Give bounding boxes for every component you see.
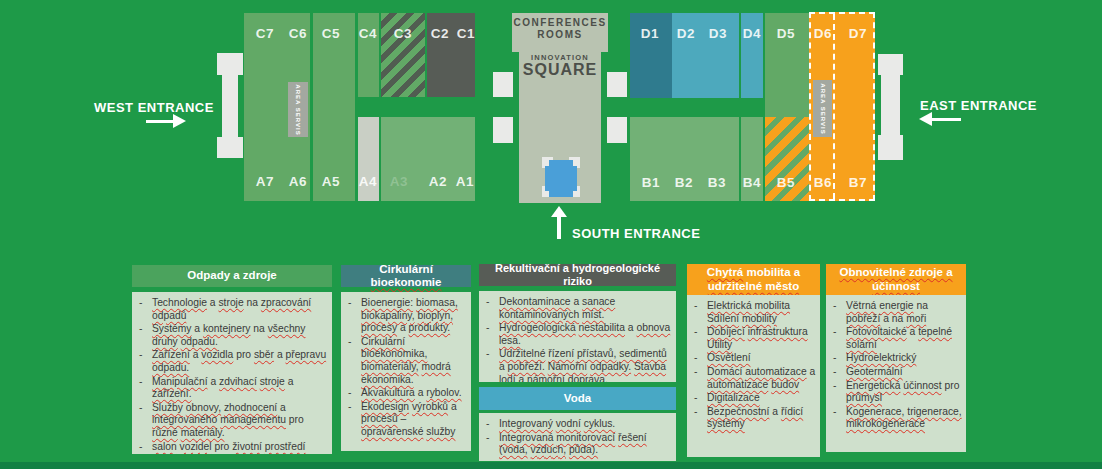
- hall-label-b7: B7: [849, 175, 867, 190]
- bullet-dash: -: [831, 406, 846, 431]
- area-service-strip-east: AREA SERVIS: [813, 80, 832, 137]
- legend-body: -Integrovaný vodní cyklus.-Integrovaná m…: [479, 413, 676, 461]
- area-service-east-label: AREA SERVIS: [820, 83, 826, 134]
- south-arrow-icon: [551, 206, 567, 217]
- legend-body: -Technologie a stroje na zpracování odpa…: [132, 292, 332, 454]
- hall-label-a5: A5: [322, 174, 340, 189]
- hall-label-a1: A1: [456, 174, 474, 189]
- east-arrow-shaft: [932, 118, 961, 121]
- bullet-dash: -: [692, 366, 707, 391]
- legend-item: -Cirkulární bioekonomika, biomateriály, …: [346, 336, 468, 386]
- legend-item: -Hydrogeologická nestabilita a obnova le…: [484, 322, 673, 347]
- area-service-strip-west: AREA SERVIS: [288, 82, 308, 137]
- legend-item: -Bezpečnostní a řídicí systémy: [692, 406, 817, 431]
- legend-header: Cirkulární bioekonomie: [341, 265, 471, 287]
- east-arrow-icon: [919, 112, 932, 126]
- building-door-east-2: [607, 117, 627, 143]
- hall-label-b3: B3: [708, 175, 726, 190]
- legend-item: -Dekontaminace a sanace kontaminovaných …: [484, 296, 673, 321]
- west-door-mid: [222, 75, 238, 137]
- legend-item: -Bioenergie: biomasa, biokapaliny, biopl…: [346, 297, 468, 335]
- innovation-square-label: INNOVATION SQUARE: [519, 53, 601, 77]
- legend-header: Odpady a zdroje: [132, 265, 332, 287]
- table-blue-horizontal: [545, 166, 577, 191]
- bullet-dash: -: [831, 366, 846, 379]
- legend-item: -Fotovoltaické a tepelné solární: [831, 326, 963, 351]
- hall-label-d5: D5: [777, 26, 795, 41]
- bullet-dash: -: [137, 376, 152, 401]
- bullet-dash: -: [831, 352, 846, 365]
- legend-header: Chytrá mobilita a udržitelné město: [687, 264, 820, 295]
- legend-item: -Větrná energie na pobřeží a na moři: [831, 300, 963, 325]
- legend-item: -Akvakultura a rybolov.: [346, 387, 468, 400]
- hall-label-d6: D6: [814, 26, 832, 41]
- hall-label-b4: B4: [743, 175, 761, 190]
- hall-label-a4: A4: [359, 174, 377, 189]
- hall-label-b1: B1: [642, 175, 660, 190]
- legend-header: Obnovitelné zdroje a účinnost: [826, 264, 966, 295]
- bullet-dash: -: [346, 401, 361, 439]
- bullet-dash: -: [346, 336, 361, 386]
- bullet-dash: -: [484, 322, 499, 347]
- legend-header: Rekultivační a hydrogeologické riziko: [479, 264, 676, 286]
- bullet-dash: -: [346, 297, 361, 335]
- hall-label-d1: D1: [641, 26, 659, 41]
- legend-item: -Digitalizace: [692, 392, 817, 405]
- legend-item: -Osvětlení: [692, 352, 817, 365]
- hall-label-c5: C5: [322, 26, 340, 41]
- legend-body: -Dekontaminace a sanace kontaminovaných …: [479, 291, 676, 382]
- hall-label-d3: D3: [709, 26, 727, 41]
- hall-label-b2: B2: [675, 175, 693, 190]
- bullet-dash: -: [137, 402, 152, 440]
- legend-body: -Elektrická mobilita Sdílení mobility-Do…: [687, 295, 820, 457]
- west-entrance-label: WEST ENTRANCE: [94, 100, 214, 115]
- west-door-top: [217, 53, 243, 75]
- hall-label-d4: D4: [743, 26, 761, 41]
- bullet-dash: -: [484, 296, 499, 321]
- bullet-dash: -: [137, 441, 152, 454]
- legend-item: -Dobíjecí infrastruktura Utility: [692, 326, 817, 351]
- hall-label-b5: B5: [777, 175, 795, 190]
- bullet-dash: -: [137, 349, 152, 374]
- legend-item: -Zařízení a vozidla pro sběr a přepravu …: [137, 349, 329, 374]
- bullet-dash: -: [692, 352, 707, 365]
- bullet-dash: -: [484, 432, 499, 457]
- west-arrow-shaft: [146, 120, 174, 123]
- hall-label-d7: D7: [849, 26, 867, 41]
- east-entrance-label: EAST ENTRANCE: [920, 98, 1037, 113]
- hall-label-a7: A7: [256, 174, 274, 189]
- bullet-dash: -: [692, 392, 707, 405]
- building-door-west-1: [493, 72, 513, 97]
- innovation-square-tables: [542, 157, 580, 197]
- bullet-dash: -: [484, 348, 499, 382]
- hall-label-c1: C1: [457, 26, 475, 41]
- legend-item: -Technologie a stroje na zpracování odpa…: [137, 297, 329, 322]
- hall-label-c3: C3: [394, 26, 412, 41]
- hall-label-d2: D2: [677, 26, 695, 41]
- bullet-dash: -: [831, 326, 846, 351]
- conference-rooms-label: CONFERENCES ROOMS: [512, 17, 608, 41]
- d6-d7-dashed-divider: [833, 14, 835, 199]
- east-door-top: [878, 54, 903, 75]
- bullet-dash: -: [346, 387, 361, 400]
- hall-label-a3: A3: [390, 174, 408, 189]
- bullet-dash: -: [831, 380, 846, 405]
- hall-label-c6: C6: [289, 26, 307, 41]
- area-service-west-label: AREA SERVIS: [295, 84, 301, 135]
- bullet-dash: -: [692, 300, 707, 325]
- bullet-dash: -: [831, 300, 846, 325]
- east-door-bottom: [878, 135, 903, 160]
- hall-label-c4: C4: [359, 26, 377, 41]
- west-arrow-icon: [173, 114, 186, 128]
- legend-item: -Služby obnovy, zhodnocení a integrované…: [137, 402, 329, 440]
- hall-label-a6: A6: [289, 174, 307, 189]
- legend-item: -Ekodesign výrobků a procesů – opraváren…: [346, 401, 468, 439]
- bullet-dash: -: [692, 326, 707, 351]
- legend-item: -Systémy a kontejnery na všechny druhy o…: [137, 323, 329, 348]
- legend-item: -Kogenerace, trigenerace, mikrokogenerac…: [831, 406, 963, 431]
- legend-item: -Integrovaný vodní cyklus.: [484, 418, 673, 431]
- legend-body: -Bioenergie: biomasa, biokapaliny, biopl…: [341, 292, 471, 451]
- legend-header: Voda: [479, 387, 676, 410]
- bullet-dash: -: [137, 323, 152, 348]
- legend-item: -salon vozidel pro životní prostředí: [137, 441, 329, 454]
- legend-body: -Větrná energie na pobřeží a na moři-Fot…: [826, 295, 966, 452]
- floor-plan-canvas: WEST ENTRANCE AREA SERVIS CONFERENCES RO…: [0, 0, 1102, 469]
- east-door-mid: [881, 75, 900, 135]
- legend-item: -Integrovaná monitorovací řešení (voda, …: [484, 432, 673, 457]
- legend-item: -Domácí automatizace a automatizace budo…: [692, 366, 817, 391]
- bottom-edge-band: [0, 462, 1102, 469]
- hall-label-a2: A2: [429, 174, 447, 189]
- building-door-east-1: [607, 72, 627, 97]
- south-arrow-shaft: [557, 217, 561, 239]
- legend-item: -Elektrická mobilita Sdílení mobility: [692, 300, 817, 325]
- hall-label-c2: C2: [431, 26, 449, 41]
- bullet-dash: -: [137, 297, 152, 322]
- bullet-dash: -: [484, 418, 499, 431]
- building-door-west-2: [493, 117, 513, 143]
- legend-item: -Hydroelektrický: [831, 352, 963, 365]
- bullet-dash: -: [692, 406, 707, 431]
- west-door-bottom: [217, 137, 243, 158]
- legend-item: -Energetická účinnost pro průmysl: [831, 380, 963, 405]
- legend-item: -Udržitelné řízení přístavů, sedimentů a…: [484, 348, 673, 382]
- hall-label-c7: C7: [256, 26, 274, 41]
- legend-item: -Manipulační a zdvihací stroje a zařízen…: [137, 376, 329, 401]
- south-entrance-label: SOUTH ENTRANCE: [572, 226, 700, 241]
- legend-item: -Geotermální: [831, 366, 963, 379]
- hall-label-b6: B6: [814, 175, 832, 190]
